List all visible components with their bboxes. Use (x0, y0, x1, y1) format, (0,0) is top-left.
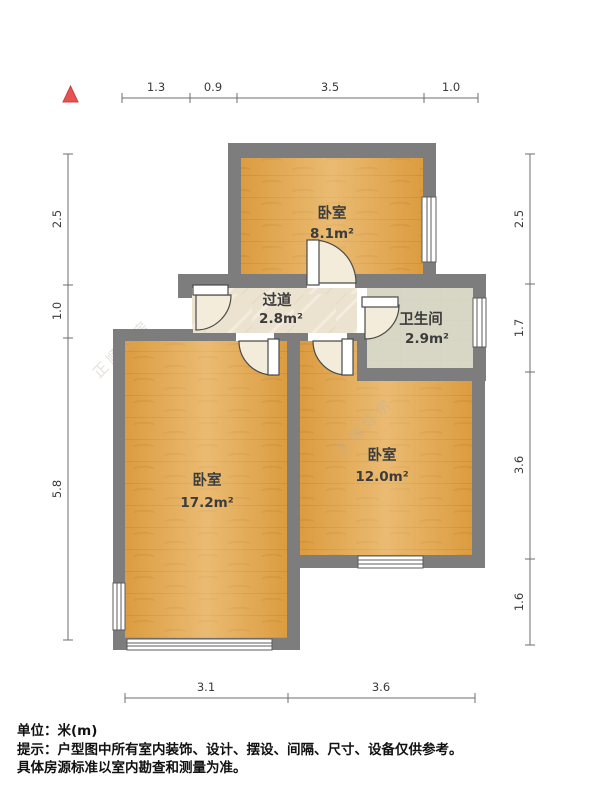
dim-bottom-1: 3.1 (197, 680, 215, 694)
dim-top-2: 0.9 (204, 80, 222, 94)
window-bedroom-left-side (113, 583, 125, 630)
label-hallway-name: 过道 (263, 291, 292, 309)
footer-unit-label: 单位：米(m) (17, 722, 97, 739)
dim-left-3: 5.8 (50, 480, 64, 498)
footer-tip-line2: 具体房源标准以室内勘查和测量为准。 (16, 759, 247, 776)
label-bedroom-top-name: 卧室 (318, 204, 347, 222)
label-bedroom-right-name: 卧室 (368, 446, 397, 464)
dim-right-3: 3.6 (512, 456, 526, 474)
footer-tip-line1: 提示：户型图中所有室内装饰、设计、摆设、间隔、尺寸、设备仅供参考。 (17, 741, 463, 758)
window-bathroom-right (473, 298, 486, 347)
room-bedroom-left-floor (125, 341, 287, 638)
label-bedroom-top-area: 8.1m² (310, 226, 354, 242)
label-bedroom-left-area: 17.2m² (180, 495, 233, 511)
label-bathroom-name: 卫生间 (399, 310, 443, 328)
window-bedroom-right-bottom (358, 556, 423, 568)
label-bathroom-area: 2.9m² (405, 331, 449, 347)
window-bedroom-left-bottom (127, 639, 272, 650)
dim-top-3: 3.5 (321, 80, 339, 94)
dim-bottom-2: 3.6 (372, 680, 390, 694)
label-hallway-area: 2.8m² (259, 311, 303, 327)
floor-plan-page: 正顺好房 正顺好房 (0, 0, 600, 797)
label-bedroom-right-area: 12.0m² (355, 469, 408, 485)
dim-top-4: 1.0 (442, 80, 460, 94)
dim-right-1: 2.5 (512, 210, 526, 228)
dim-right-2: 1.7 (512, 319, 526, 337)
window-bedroom-top-right (422, 197, 436, 262)
dim-right-4: 1.6 (512, 593, 526, 611)
label-bedroom-left-name: 卧室 (193, 471, 222, 489)
dim-left-1: 2.5 (50, 210, 64, 228)
north-arrow-icon (63, 86, 78, 102)
dim-top-1: 1.3 (147, 80, 165, 94)
floor-plan-canvas: 正顺好房 正顺好房 (0, 0, 600, 797)
dim-left-2: 1.0 (50, 302, 64, 320)
